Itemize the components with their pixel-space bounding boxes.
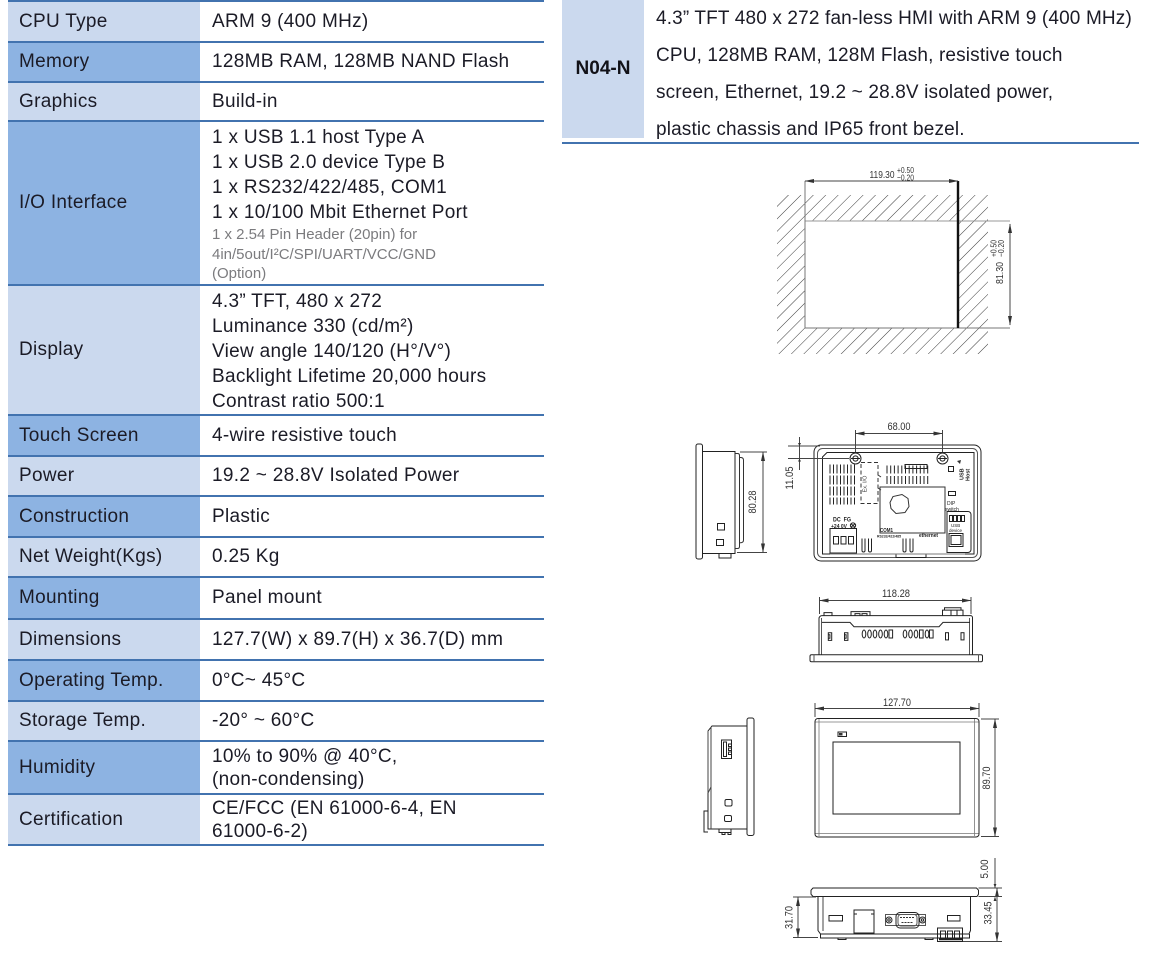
svg-text:−0.20: −0.20 [897,173,914,183]
svg-text:80.28: 80.28 [747,491,759,514]
svg-text:33.45: 33.45 [983,902,995,925]
svg-text:Host: Host [966,469,972,481]
svg-text:127.70: 127.70 [883,697,911,709]
svg-text:89.70: 89.70 [981,767,993,790]
svg-text:81.30: 81.30 [994,262,1006,284]
svg-text:RS232/422/485: RS232/422/485 [877,534,902,539]
svg-text:−0.20: −0.20 [996,240,1006,257]
svg-text:+24 0V: +24 0V [831,524,848,530]
svg-text:Ex. I/O: Ex. I/O [863,475,869,493]
svg-text:31.70: 31.70 [784,906,796,929]
svg-text:device: device [949,528,963,533]
svg-text:11.05: 11.05 [784,467,796,490]
svg-text:118.28: 118.28 [882,588,910,600]
svg-text:ethernet: ethernet [919,533,938,539]
svg-text:5.00: 5.00 [979,860,991,879]
svg-text:68.00: 68.00 [888,421,911,433]
svg-text:119.30: 119.30 [870,169,895,181]
svg-text:DC FG: DC FG [833,518,851,524]
